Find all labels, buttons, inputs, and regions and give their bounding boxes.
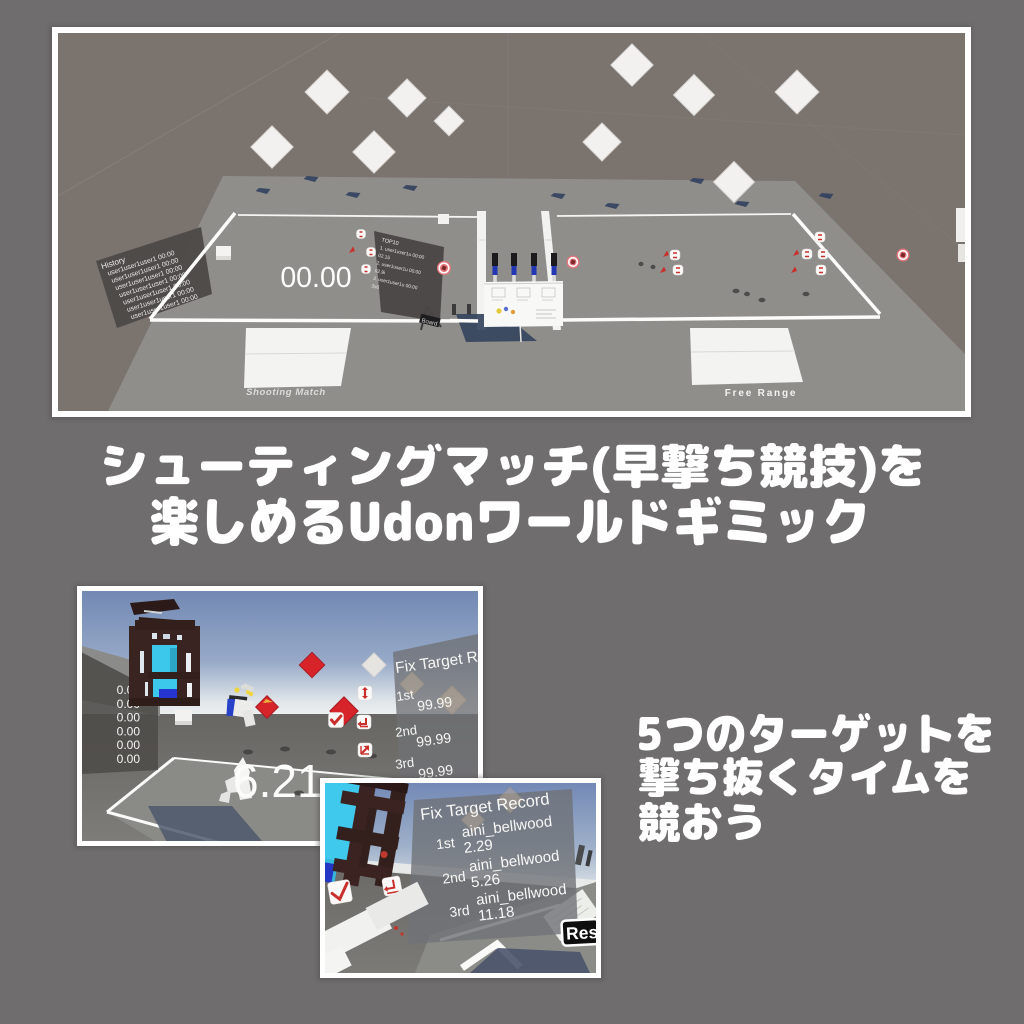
svg-text:Res: Res <box>566 922 599 944</box>
svg-text:0.00: 0.00 <box>117 724 141 738</box>
svg-text:Free Range: Free Range <box>725 388 797 399</box>
svg-text:3rd: 3rd <box>448 902 470 920</box>
svg-text:1st: 1st <box>435 834 456 852</box>
svg-text:00.00: 00.00 <box>280 262 351 294</box>
svg-text:0.00: 0.00 <box>117 752 141 766</box>
svg-text:3rd: 3rd <box>394 755 415 772</box>
svg-text:1st: 1st <box>395 687 415 704</box>
svg-text:2nd: 2nd <box>394 722 418 740</box>
svg-text:0.00: 0.00 <box>117 738 141 752</box>
svg-text:0.00: 0.00 <box>117 711 141 725</box>
svg-text:2.29: 2.29 <box>463 837 494 857</box>
svg-text:6.21: 6.21 <box>233 755 323 807</box>
svg-text:5.26: 5.26 <box>470 871 501 891</box>
svg-text:Shooting Match: Shooting Match <box>246 387 326 398</box>
svg-text:2nd: 2nd <box>441 868 466 887</box>
